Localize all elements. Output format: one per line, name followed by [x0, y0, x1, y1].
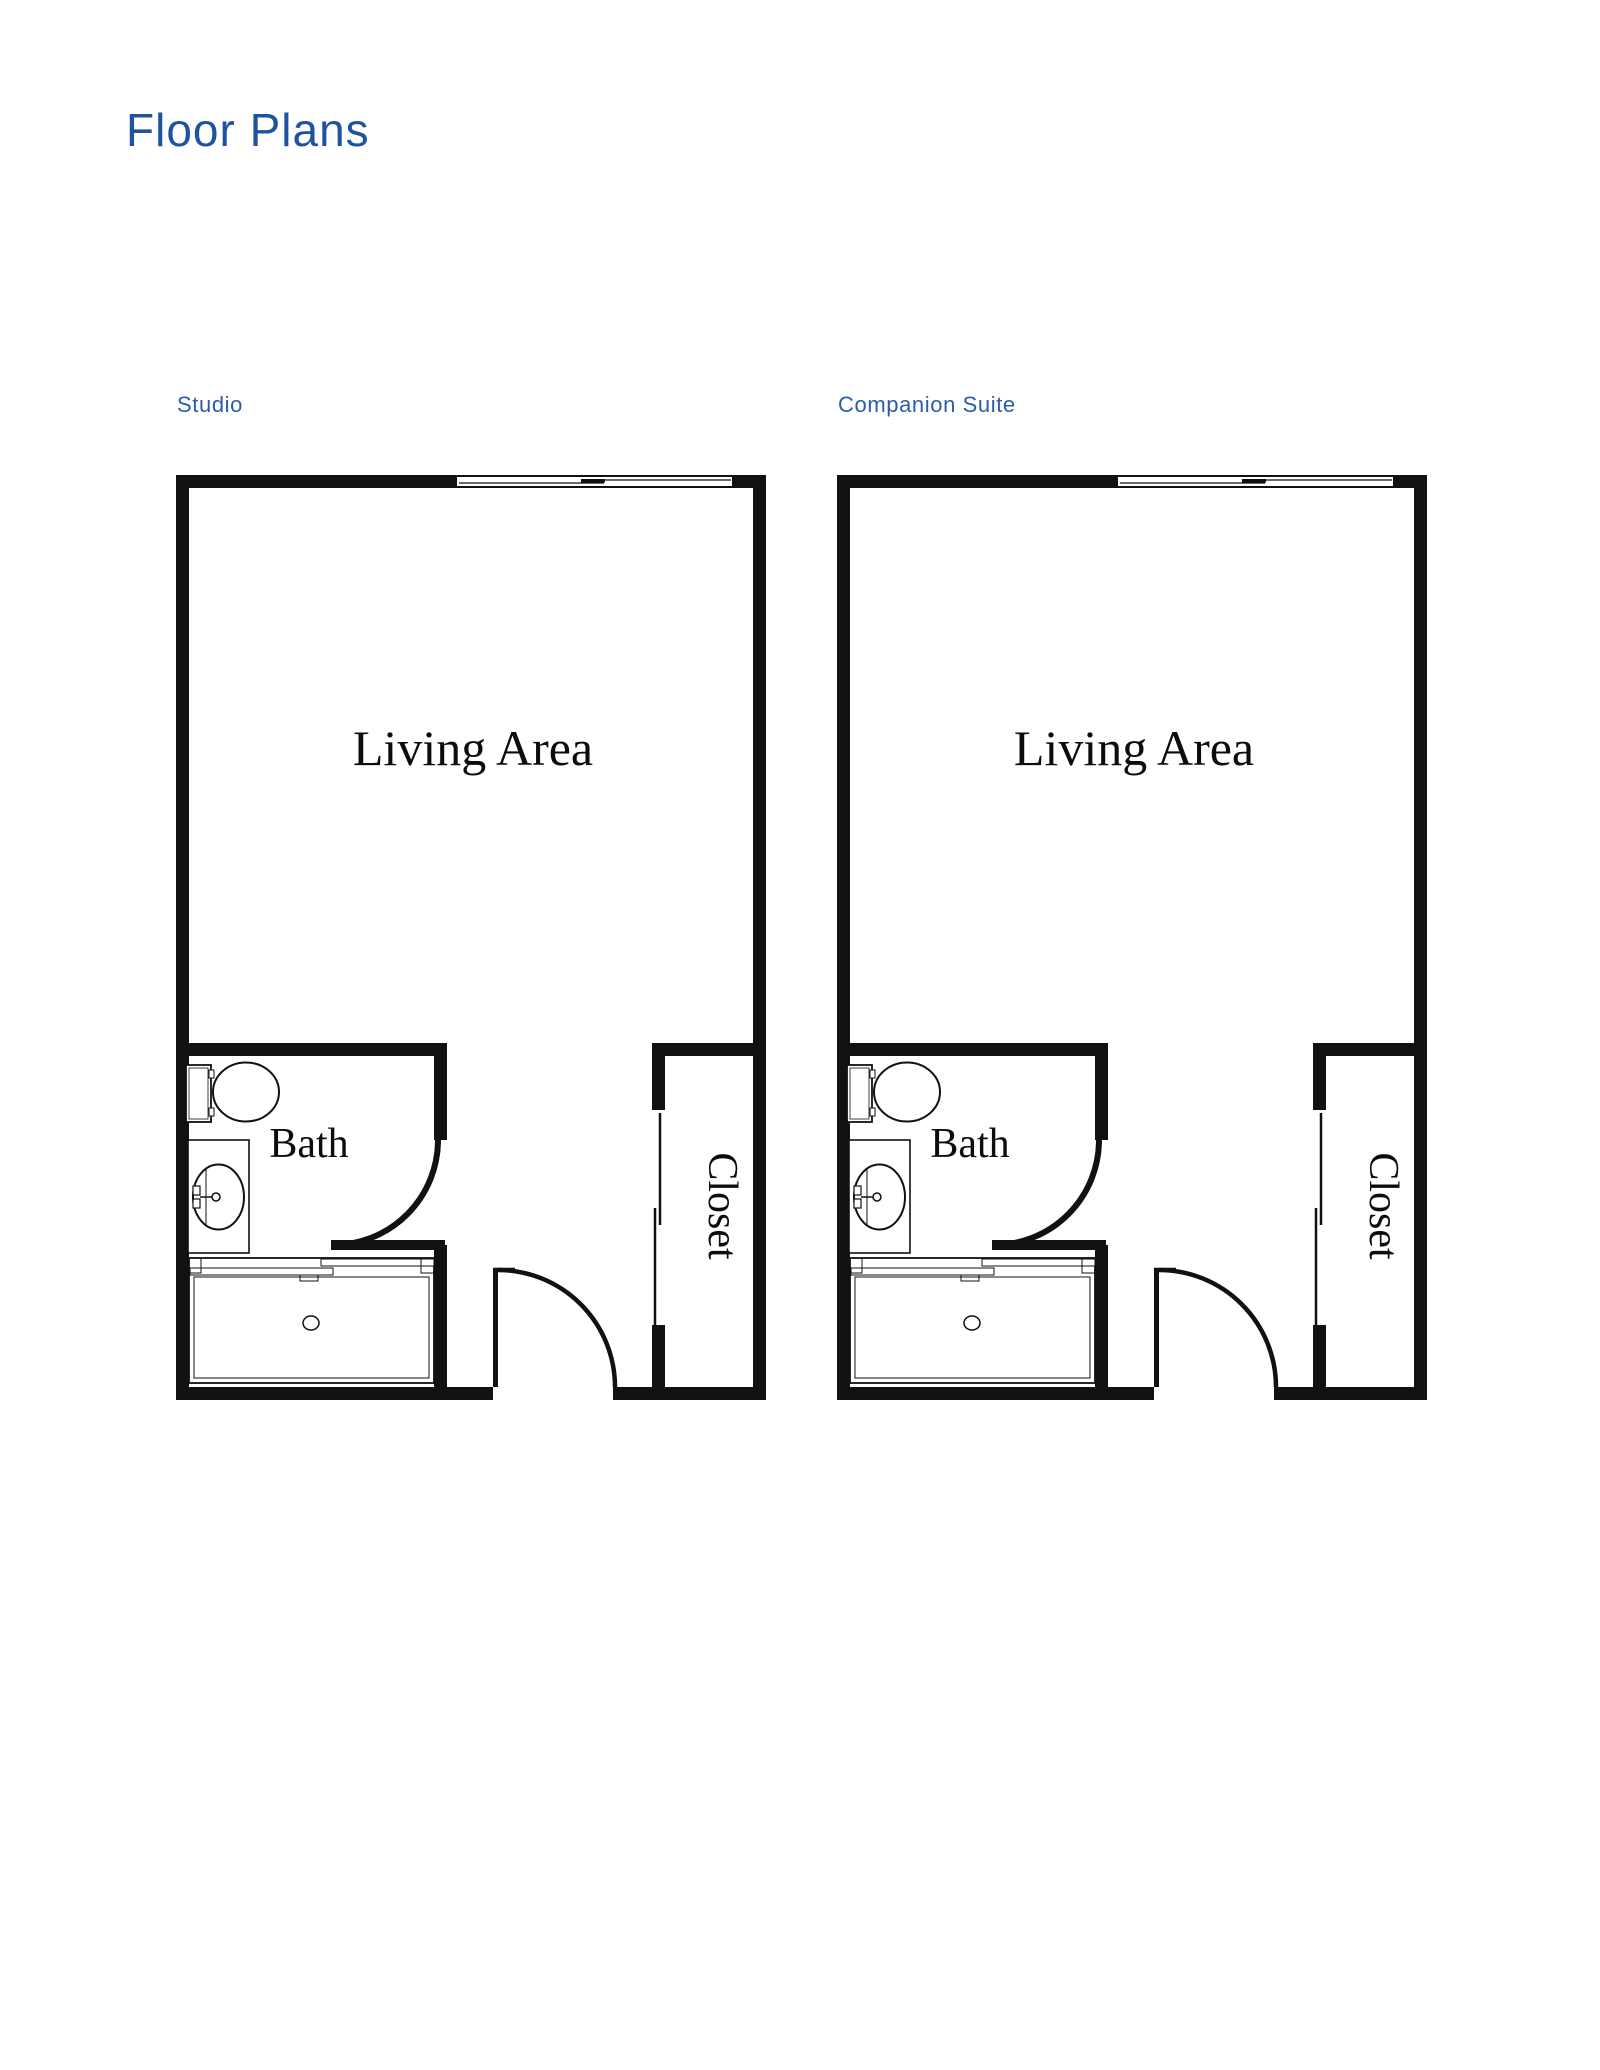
closet-sliding-door: [1316, 1113, 1321, 1325]
toilet: [847, 1063, 940, 1123]
floor-plan-studio: Living Area Bath Closet: [176, 475, 766, 1400]
floor-plan-companion-suite: Living Area Bath Closet: [837, 475, 1427, 1400]
page-title: Floor Plans: [126, 105, 370, 156]
sink-vanity: [849, 1140, 910, 1253]
window: [1117, 476, 1394, 487]
entry-door: [493, 1268, 615, 1387]
toilet: [186, 1063, 279, 1123]
closet-label: Closet: [699, 1152, 745, 1260]
living-area-label: Living Area: [353, 720, 593, 776]
living-area-label: Living Area: [1014, 720, 1254, 776]
room-labels: Living Area Bath Closet: [269, 720, 745, 1260]
plan-label-studio: Studio: [177, 392, 243, 418]
bathtub: [189, 1258, 434, 1383]
bath-label: Bath: [269, 1121, 348, 1167]
bath-label: Bath: [930, 1121, 1009, 1167]
closet-sliding-door: [655, 1113, 660, 1325]
plan-label-companion-suite: Companion Suite: [838, 392, 1016, 418]
page: Floor Plans Studio Companion Suite: [0, 0, 1600, 2070]
bathtub: [850, 1258, 1095, 1383]
entry-door: [1154, 1268, 1276, 1387]
sink-vanity: [188, 1140, 249, 1253]
room-labels: Living Area Bath Closet: [930, 720, 1406, 1260]
window: [456, 476, 733, 487]
closet-label: Closet: [1360, 1152, 1406, 1260]
